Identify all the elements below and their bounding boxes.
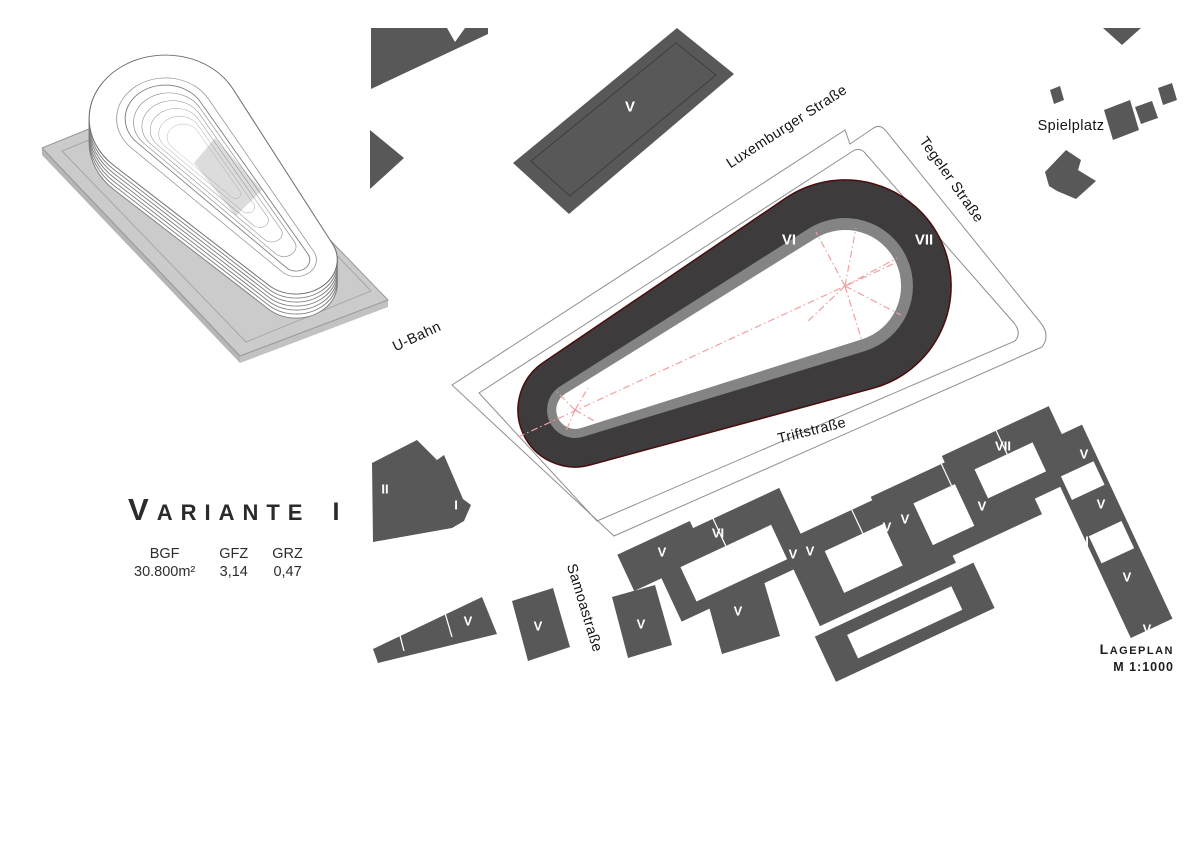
drawing-sheet: Luxemburger StraßeTegeler StraßeTriftstr…	[0, 0, 1200, 849]
page-title: VARIANTE I	[128, 492, 339, 528]
block	[371, 28, 488, 89]
block	[370, 130, 404, 189]
block-v-north	[513, 28, 734, 214]
urban-blocks	[372, 406, 1172, 682]
legend-title-rest: AGEPLAN	[1110, 645, 1174, 657]
block	[512, 588, 570, 661]
context-blocks-top	[370, 28, 734, 214]
site-plan-svg	[0, 0, 1200, 849]
title-lead: V	[128, 492, 157, 528]
stat-value: 0,47	[272, 564, 303, 580]
block	[612, 585, 672, 658]
axonometric-drawing	[42, 32, 388, 363]
key-figures: BGF 30.800m² GFZ 3,14 GRZ 0,47	[122, 546, 315, 580]
legend-title: LAGEPLAN	[1100, 641, 1174, 659]
title-rest: ARIANTE	[157, 500, 311, 526]
stat-gfz: GFZ 3,14	[207, 546, 260, 580]
stat-grz: GRZ 0,47	[260, 546, 315, 580]
stat-label: BGF	[134, 546, 195, 562]
legend-scale: M 1:1000	[1100, 660, 1174, 674]
block-II-I	[372, 440, 471, 542]
main-building-ring	[516, 180, 951, 467]
east-block-column	[1040, 425, 1172, 638]
title-numeral: I	[332, 498, 339, 527]
stat-label: GFZ	[219, 546, 248, 562]
plan-legend: LAGEPLAN M 1:1000	[1100, 641, 1174, 674]
stat-value: 3,14	[219, 564, 248, 580]
stat-value: 30.800m²	[134, 564, 195, 580]
legend-title-lead: L	[1100, 641, 1110, 657]
block-strip	[373, 597, 497, 663]
stat-label: GRZ	[272, 546, 303, 562]
stat-bgf: BGF 30.800m²	[122, 546, 207, 580]
spielplatz-blocks	[1045, 28, 1177, 199]
